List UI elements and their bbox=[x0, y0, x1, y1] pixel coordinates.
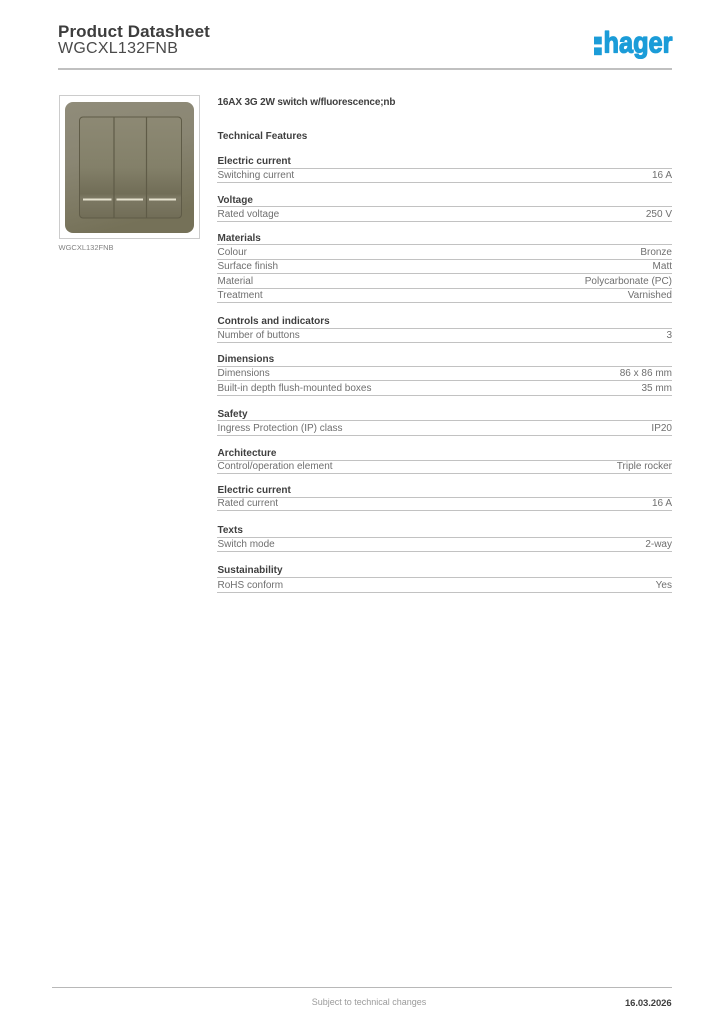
svg-text:hager: hager bbox=[604, 27, 673, 59]
